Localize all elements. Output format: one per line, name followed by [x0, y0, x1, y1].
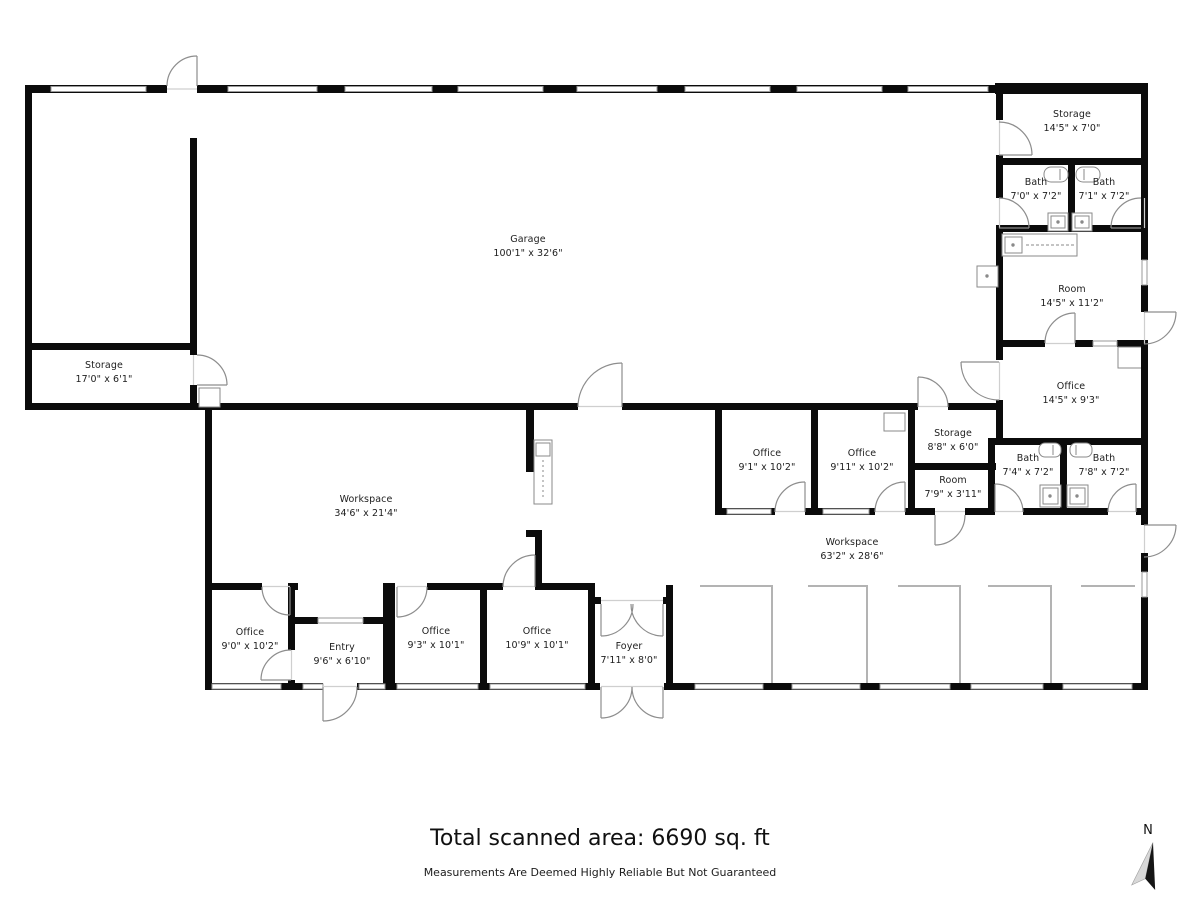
room-label-bath-2: Bath7'1" x 7'2": [1079, 176, 1130, 205]
room-label-storage-topright: Storage14'5" x 7'0": [1043, 108, 1100, 137]
room-label-office-bottom-2: Office9'3" x 10'1": [407, 625, 464, 654]
room-label-room-small: Room7'9" x 3'11": [924, 474, 981, 503]
room-label-office-bottom-1: Office9'0" x 10'2": [221, 626, 278, 655]
room-label-office-bottom-3: Office10'9" x 10'1": [505, 625, 568, 654]
room-label-workspace-right: Workspace63'2" x 28'6": [820, 536, 883, 565]
room-label-garage: Garage100'1" x 32'6": [493, 233, 562, 262]
room-label-bath-4: Bath7'8" x 7'2": [1079, 452, 1130, 481]
room-label-bath-3: Bath7'4" x 7'2": [1003, 452, 1054, 481]
room-label-entry: Entry9'6" x 6'10": [313, 641, 370, 670]
utility-box: [199, 388, 220, 407]
room-label-office-right: Office14'5" x 9'3": [1042, 380, 1099, 409]
alcove-outline: [1118, 347, 1141, 368]
utility-box: [884, 413, 905, 431]
north-arrow-icon: [1132, 840, 1165, 890]
cubicle-partitions: [700, 586, 1135, 683]
compass: N: [1124, 818, 1172, 896]
disclaimer-text: Measurements Are Deemed Highly Reliable …: [0, 866, 1200, 879]
room-label-room-right: Room14'5" x 11'2": [1040, 283, 1103, 312]
floor-plan-drawing: [0, 0, 1200, 900]
room-label-storage-mid: Storage8'8" x 6'0": [928, 427, 979, 456]
sink-icon: [536, 443, 550, 456]
floor-plan-page: Garage100'1" x 32'6" Storage17'0" x 6'1"…: [0, 0, 1200, 900]
room-label-foyer: Foyer7'11" x 8'0": [600, 640, 657, 669]
room-label-office-mid-2: Office9'11" x 10'2": [830, 447, 893, 476]
walls: [25, 83, 1148, 690]
room-label-storage-left: Storage17'0" x 6'1": [75, 359, 132, 388]
total-area-title: Total scanned area: 6690 sq. ft: [0, 826, 1200, 851]
room-label-workspace-left: Workspace34'6" x 21'4": [334, 493, 397, 522]
room-label-office-mid-1: Office9'1" x 10'2": [738, 447, 795, 476]
room-label-bath-1: Bath7'0" x 7'2": [1011, 176, 1062, 205]
compass-svg: N: [1124, 818, 1172, 896]
compass-n-label: N: [1143, 823, 1153, 838]
